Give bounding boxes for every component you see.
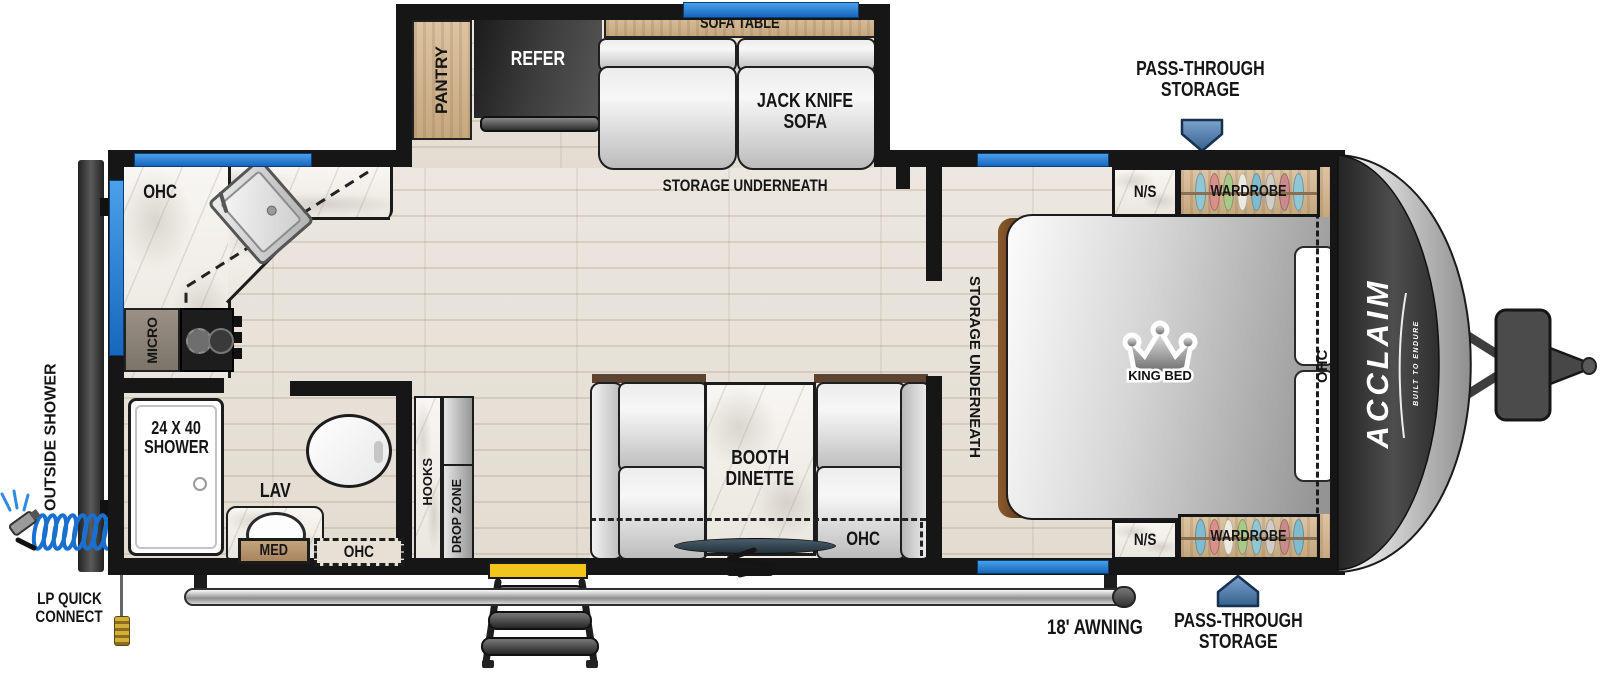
cooktop-knob [234, 348, 242, 359]
shower-label: 24 X 40 SHOWER [130, 410, 222, 466]
cooktop-knob [234, 316, 242, 327]
wardrobe-bottom-label: WARDROBE [1178, 514, 1320, 560]
slide-wall-left [396, 4, 412, 167]
front-cap: ACCLAIM BUILT TO ENDURE [1328, 138, 1600, 590]
microwave: MICRO [124, 308, 180, 372]
dinette-ohc-dashes-side [920, 522, 923, 556]
pass-through-top-arrow-icon [1180, 118, 1224, 154]
dinette-seat-right-a [816, 382, 906, 472]
bath-wall-top-right [290, 381, 412, 396]
king-bed-label: KING BED [1128, 368, 1192, 383]
med-cabinet: MED [238, 538, 310, 564]
brand-logo: ACCLAIM [1360, 278, 1395, 450]
wardrobe-top-label: WARDROBE [1178, 167, 1320, 217]
pass-through-bottom-arrow-icon [1216, 574, 1260, 608]
drop-zone-upper [442, 396, 474, 466]
sofa-storage-label: STORAGE UNDERNEATH [640, 176, 850, 196]
slide-wall-right [874, 4, 890, 167]
awning-label: 18' AWNING [1020, 614, 1170, 642]
pass-through-top-label: PASS-THROUGH STORAGE [1112, 56, 1288, 104]
lav-label: LAV [250, 478, 300, 504]
dinette-seat-left-a [618, 382, 708, 472]
dinette-table: BOOTH DINETTE [704, 382, 816, 556]
floorplan-canvas: OUTSIDE SHOWER LP QUICK CONNECT [0, 0, 1600, 677]
dinette-ohc-dashes [590, 518, 926, 521]
bedroom-wall-lower [926, 376, 942, 558]
refer-door [480, 116, 600, 132]
toilet [306, 414, 392, 488]
brand-tagline: BUILT TO ENDURE [1413, 320, 1420, 406]
awning-bar [184, 588, 1134, 606]
nightstand-top: N/S [1112, 167, 1178, 217]
bath-wall-top-left [122, 378, 224, 393]
nightstand-bottom: N/S [1112, 520, 1178, 560]
lp-quick-connect-label: LP QUICK CONNECT [10, 584, 128, 632]
shower-drain [193, 477, 207, 491]
pass-through-bottom-label: PASS-THROUGH STORAGE [1150, 608, 1326, 656]
dinette-pedestal-base [726, 568, 774, 576]
window-bedroom-bottom [977, 560, 1109, 574]
jack-knife-sofa-label: JACK KNIFE SOFA [740, 82, 870, 142]
king-bed-crown-icon: KING BED [1118, 314, 1202, 388]
pantry-cabinet: PANTRY [412, 20, 472, 140]
cooktop-knob [234, 332, 242, 343]
window-bedroom-top [977, 153, 1109, 167]
dinette-ohc-label: OHC [838, 526, 888, 554]
toilet-flush [374, 441, 383, 463]
drop-zone-lower: DROP ZONE [442, 464, 474, 568]
bath-ohc: OHC [314, 538, 404, 566]
sofa-seat-left [598, 66, 737, 170]
hooks-strip: HOOKS [414, 396, 442, 568]
bedroom-wall-upper [926, 167, 942, 281]
refer-label: REFER [474, 34, 602, 84]
bed-storage-label: STORAGE UNDERNEATH [960, 272, 988, 462]
kitchen-ohc-label: OHC [130, 180, 190, 206]
window-kitchen-top [134, 153, 312, 167]
awning-end-cap [1112, 586, 1136, 608]
outside-shower-label: OUTSIDE SHOWER [38, 358, 66, 516]
wall-top-right [874, 150, 1345, 167]
window-slide-top [683, 2, 859, 18]
cooktop [180, 308, 234, 372]
burner-icon [208, 328, 234, 354]
window-left-wall [109, 180, 124, 356]
entry-door-step [488, 562, 588, 579]
wall-stub-galley [896, 167, 910, 189]
